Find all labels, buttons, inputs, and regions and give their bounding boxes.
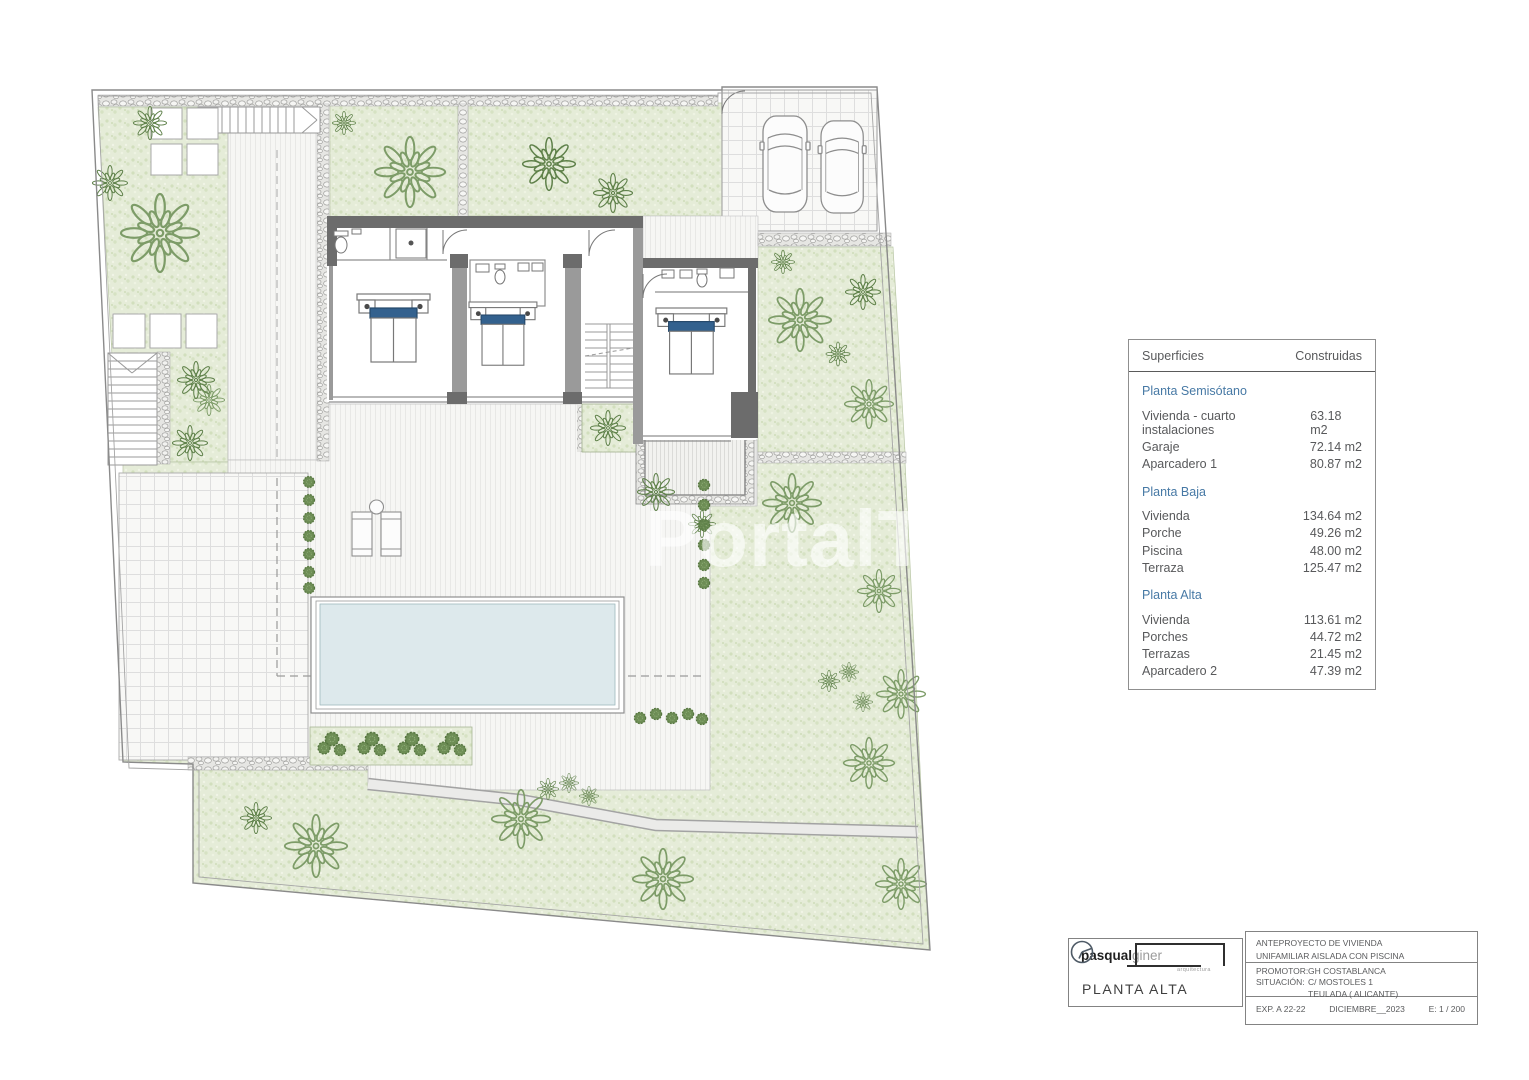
project-line1: ANTEPROYECTO DE VIVIENDA	[1256, 937, 1477, 950]
surfaces-table-header: Superficies Construidas	[1129, 340, 1375, 372]
row-value: 49.26 m2	[1310, 526, 1362, 540]
clock-icon	[1069, 939, 1095, 965]
section-title: Planta Semisótano	[1129, 384, 1375, 398]
promotor-value: GH COSTABLANCA	[1308, 966, 1477, 977]
row-label: Vivienda - cuarto instalaciones	[1142, 409, 1310, 437]
tiled-terrace	[119, 473, 308, 760]
car	[818, 121, 866, 213]
section-title: Planta Alta	[1129, 588, 1375, 602]
section-planta-baja: Planta Baja Vivienda 134.64 m2 Porche 49…	[1129, 485, 1375, 577]
table-row: Vivienda - cuarto instalaciones 63.18 m2	[1129, 407, 1375, 438]
row-value: 48.00 m2	[1310, 544, 1362, 558]
table-row: Porches 44.72 m2	[1129, 629, 1375, 646]
situacion-line1: C/ MOSTOLES 1	[1308, 977, 1477, 988]
section-planta-semisotano: Planta Semisótano Vivienda - cuarto inst…	[1129, 384, 1375, 473]
row-label: Porches	[1142, 630, 1188, 644]
situacion-line2: TEULADA ( ALICANTE)	[1308, 989, 1477, 1000]
table-row: Vivienda 134.64 m2	[1129, 508, 1375, 525]
row-label: Terrazas	[1142, 647, 1190, 661]
table-row: Aparcadero 1 80.87 m2	[1129, 455, 1375, 472]
table-row: Porche 49.26 m2	[1129, 525, 1375, 542]
car	[760, 116, 810, 212]
row-label: Aparcadero 2	[1142, 664, 1217, 678]
row-value: 47.39 m2	[1310, 664, 1362, 678]
table-row: Terraza 125.47 m2	[1129, 559, 1375, 576]
row-label: Garaje	[1142, 440, 1180, 454]
surfaces-header-right: Construidas	[1295, 349, 1362, 363]
drawing-sheet: PortalTop Superficies Construidas Planta…	[0, 0, 1529, 1080]
row-value: 113.61 m2	[1304, 613, 1362, 627]
title-block-right: ANTEPROYECTO DE VIVIENDA UNIFAMILIAR AIS…	[1245, 931, 1478, 1025]
drawing-scale: E: 1 / 200	[1429, 1004, 1465, 1014]
surfaces-header-left: Superficies	[1142, 349, 1204, 363]
row-value: 125.47 m2	[1303, 561, 1362, 575]
table-row: Terrazas 21.45 m2	[1129, 646, 1375, 663]
logo-box	[1135, 943, 1225, 966]
pool	[311, 597, 624, 713]
situacion-label: SITUACIÓN:	[1256, 977, 1308, 988]
section-title: Planta Baja	[1129, 485, 1375, 499]
section-planta-alta: Planta Alta Vivienda 113.61 m2 Porches 4…	[1129, 588, 1375, 680]
row-label: Piscina	[1142, 544, 1182, 558]
expediente: EXP. A 22-22	[1256, 1004, 1305, 1014]
pool-water	[320, 604, 615, 705]
row-label: Vivienda	[1142, 509, 1190, 523]
project-line2: UNIFAMILIAR AISLADA CON PISCINA	[1256, 950, 1477, 963]
project-title: ANTEPROYECTO DE VIVIENDA UNIFAMILIAR AIS…	[1246, 932, 1477, 963]
table-row: Aparcadero 2 47.39 m2	[1129, 663, 1375, 680]
logo-subtitle: arquitectura	[1177, 967, 1211, 973]
row-label: Aparcadero 1	[1142, 457, 1217, 471]
row-value: 134.64 m2	[1303, 509, 1362, 523]
promotor-label: PROMOTOR:	[1256, 966, 1308, 977]
row-value: 63.18 m2	[1310, 409, 1362, 437]
row-label: Terraza	[1142, 561, 1184, 575]
project-info: PROMOTOR: GH COSTABLANCA SITUACIÓN: C/ M…	[1246, 963, 1477, 997]
table-row: Garaje 72.14 m2	[1129, 438, 1375, 455]
surfaces-table: Superficies Construidas Planta Semisótan…	[1128, 339, 1376, 690]
row-value: 72.14 m2	[1310, 440, 1362, 454]
row-label: Vivienda	[1142, 613, 1190, 627]
row-value: 21.45 m2	[1310, 647, 1362, 661]
plan-name: PLANTA ALTA	[1082, 981, 1188, 997]
row-value: 80.87 m2	[1310, 457, 1362, 471]
watermark: PortalTop	[645, 494, 1021, 583]
row-label: Porche	[1142, 526, 1182, 540]
table-row: Vivienda 113.61 m2	[1129, 611, 1375, 628]
table-row: Piscina 48.00 m2	[1129, 542, 1375, 559]
row-value: 44.72 m2	[1310, 630, 1362, 644]
date: DICIEMBRE__2023	[1329, 1004, 1405, 1014]
title-block-left: pasqualginer arquitectura PLANTA ALTA	[1068, 938, 1243, 1007]
